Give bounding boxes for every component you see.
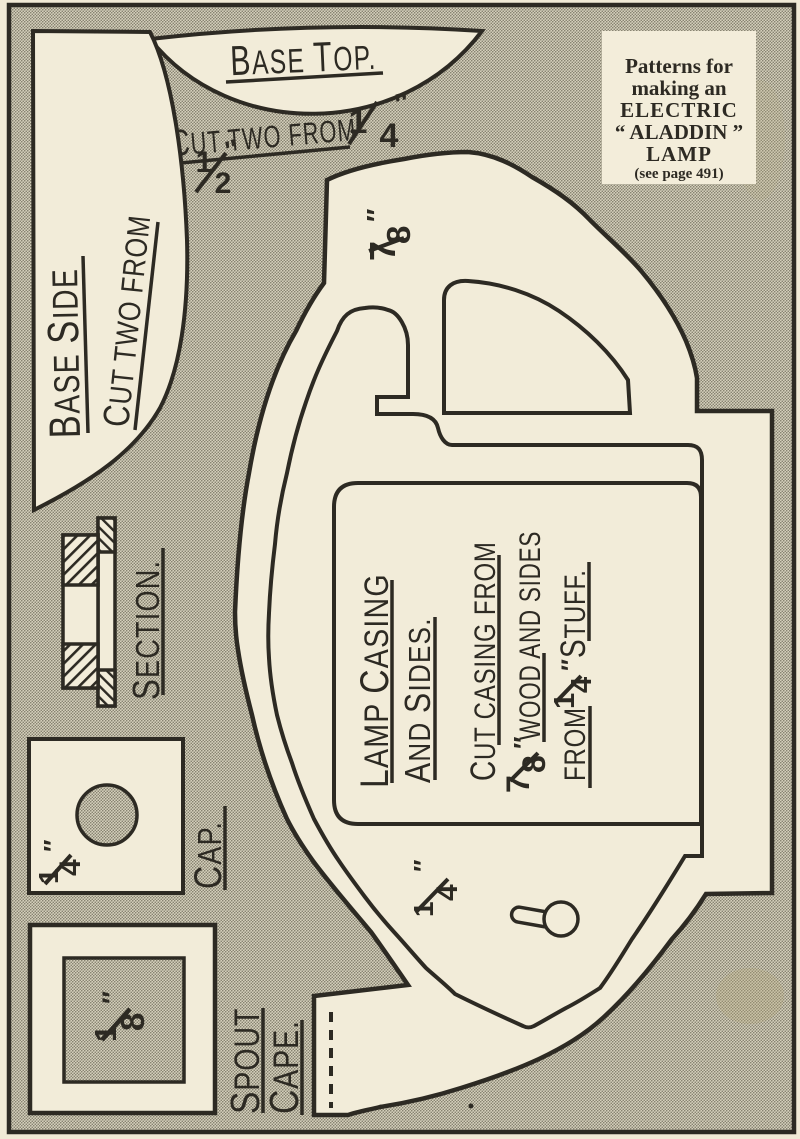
svg-text:making an: making an [631,76,726,100]
svg-text:2: 2 [215,167,232,200]
svg-text:WOOD AND SIDES: WOOD AND SIDES [513,531,547,740]
svg-text:FROM: FROM [557,707,591,781]
svg-text:7: 7 [500,775,536,793]
svg-text:″: ″ [408,860,438,872]
svg-text:″: ″ [557,659,585,671]
svg-text:“ ALADDIN ”: “ ALADDIN ” [615,120,743,144]
svg-text:LAMP CASING: LAMP CASING [352,573,396,788]
svg-text:″: ″ [361,209,392,222]
svg-text:4: 4 [380,117,399,155]
svg-text:″: ″ [38,840,68,852]
svg-text:CAP.: CAP. [186,821,230,889]
svg-text:CUT CASING FROM: CUT CASING FROM [463,541,503,781]
svg-text:4: 4 [431,884,464,901]
svg-text:AND SIDES.: AND SIDES. [399,617,439,783]
svg-text:4: 4 [566,677,598,693]
svg-text:(see page 491): (see page 491) [634,166,723,182]
svg-text:4: 4 [54,859,87,876]
svg-text:Patterns for: Patterns for [625,54,733,78]
svg-text:8: 8 [380,226,417,244]
svg-text:″: ″ [508,737,538,749]
svg-text:CAPE.: CAPE. [261,1020,307,1114]
svg-text:8: 8 [114,1013,151,1031]
svg-text:ELECTRIC: ELECTRIC [620,98,738,122]
svg-text:LAMP: LAMP [646,142,712,166]
svg-text:STUFF.: STUFF. [553,569,593,658]
svg-text:″: ″ [97,991,127,1004]
svg-text:8: 8 [516,755,552,773]
